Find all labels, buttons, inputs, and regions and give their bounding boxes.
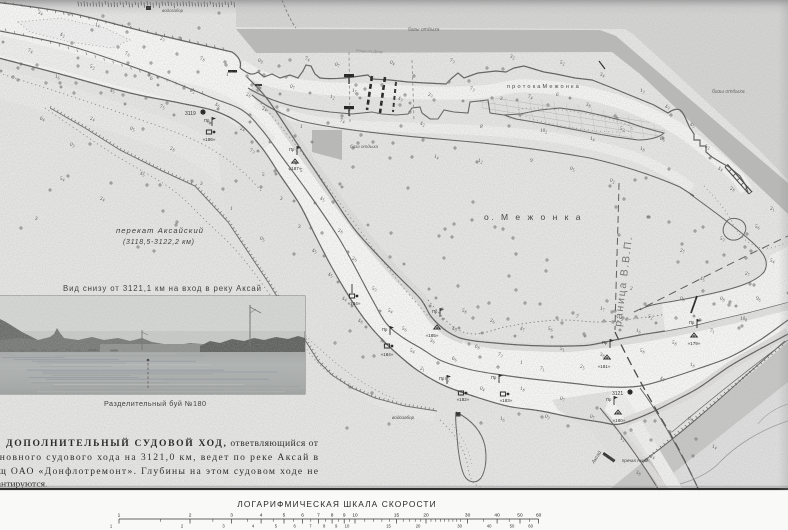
svg-text:5: 5 <box>283 513 286 519</box>
svg-text:60: 60 <box>536 513 542 519</box>
svg-text:40: 40 <box>487 524 492 529</box>
svg-text:60: 60 <box>528 524 533 529</box>
svg-text:50: 50 <box>517 513 523 519</box>
svg-text:15: 15 <box>394 513 400 519</box>
svg-text:8: 8 <box>331 513 334 519</box>
svg-text:10: 10 <box>345 524 350 529</box>
svg-text:1: 1 <box>118 513 121 519</box>
svg-text:4: 4 <box>260 513 263 519</box>
svg-text:40: 40 <box>494 513 500 519</box>
svg-text:6: 6 <box>301 513 304 519</box>
svg-text:15: 15 <box>386 524 391 529</box>
svg-text:ЛОГАРИФМИЧЕСКАЯ ШКАЛА СКОРОС: ЛОГАРИФМИЧЕСКАЯ ШКАЛА СКОРОСТИ <box>237 499 437 509</box>
svg-text:9: 9 <box>343 513 346 519</box>
svg-text:2: 2 <box>189 513 192 519</box>
svg-text:50: 50 <box>510 524 515 529</box>
svg-text:30: 30 <box>465 513 471 519</box>
svg-text:20: 20 <box>423 513 429 519</box>
svg-text:30: 30 <box>457 524 462 529</box>
svg-text:3: 3 <box>230 513 233 519</box>
svg-text:7: 7 <box>317 513 320 519</box>
svg-text:10: 10 <box>352 513 358 519</box>
svg-text:20: 20 <box>416 524 421 529</box>
